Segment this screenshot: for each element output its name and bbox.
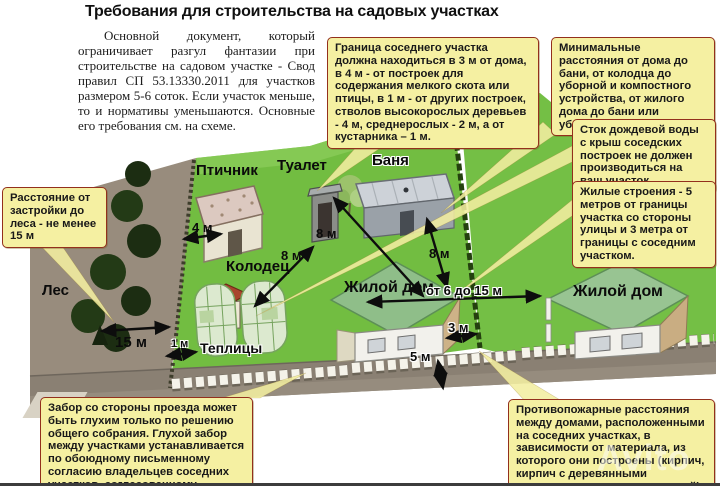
distance-between-houses: от 6 до 15 м	[426, 283, 502, 298]
label-well: Колодец	[226, 258, 289, 275]
page-title: Требования для строительства на садовых …	[85, 3, 499, 21]
distance-toilet-to-well: 8 м	[281, 248, 301, 263]
label-forest: Лес	[42, 282, 69, 299]
label-house-right: Жилой дом	[573, 283, 663, 301]
callout-forest-distance: Расстояние от застройки до леса - не мен…	[2, 187, 107, 248]
callout-neighbor-boundary: Граница соседнего участка должна находит…	[327, 37, 539, 149]
label-greenhouses: Теплицы	[200, 340, 262, 356]
label-house-left: Жилой дом	[344, 279, 434, 297]
label-bathhouse: Баня	[372, 152, 409, 169]
label-poultry-house: Птичник	[196, 162, 258, 179]
distance-forest-to-plot: 15 м	[115, 334, 147, 351]
distance-house-to-fence: 3 м	[448, 320, 468, 335]
distance-toilet-to-house: 8 м	[316, 226, 336, 241]
avito-watermark: Avito	[597, 437, 691, 479]
callout-fence-rules: Забор со стороны проезда может быть глух…	[40, 397, 253, 486]
distance-greenhouse-to-fence: 1 м	[171, 338, 188, 350]
distance-poultry-to-fence: 4 м	[192, 220, 212, 235]
callout-dwellings: Жилые строения - 5 метров от границы уча…	[572, 181, 716, 268]
bathhouse-building	[356, 174, 454, 238]
label-toilet: Туалет	[277, 157, 327, 174]
intro-paragraph: Основной документ, который ограничивает …	[78, 29, 315, 134]
distance-house-to-street: 5 м	[410, 349, 430, 364]
infographic-garden-plot-rules: Требования для строительства на садовых …	[0, 0, 720, 486]
distance-bath-to-house: 8 м	[429, 246, 449, 261]
